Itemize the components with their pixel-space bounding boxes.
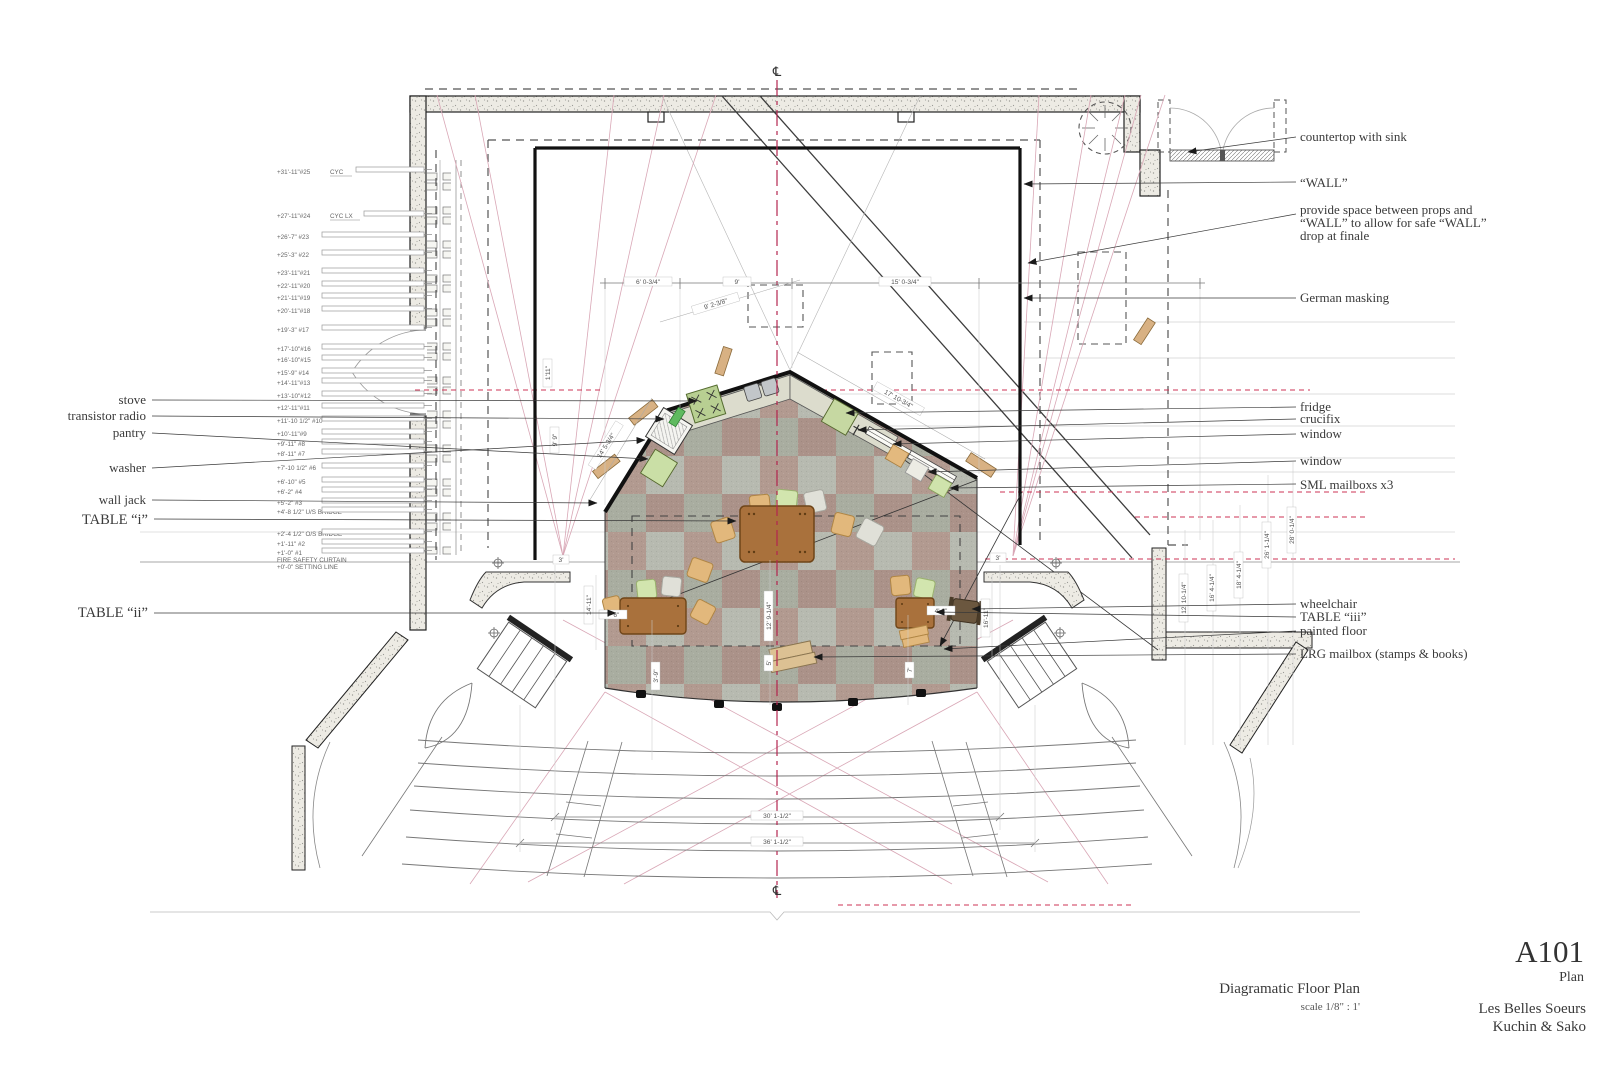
line-set-label: +13'-10"#12 <box>277 393 311 400</box>
line-set-batten <box>322 548 424 553</box>
line-set-batten <box>322 281 424 286</box>
dim-label: 3' <box>996 555 1001 562</box>
label-window-2: window <box>1300 453 1343 468</box>
label-german-masking: German masking <box>1300 290 1390 305</box>
line-set-label: +10'-11"#9 <box>277 431 307 438</box>
line-set-batten <box>322 325 424 330</box>
line-set-label: +9'-11" #8 <box>277 441 306 448</box>
line-set-label: +19'-3" #17 <box>277 327 309 334</box>
line-set-batten <box>322 268 424 273</box>
dim-label: 12' 10-1/4" <box>1181 582 1188 614</box>
dim-label: 7' <box>907 668 914 673</box>
designers: Kuchin & Sako <box>1493 1019 1586 1035</box>
sheet-number: A101 <box>1515 934 1584 969</box>
line-set-label: +1'-0" #1 <box>277 550 302 557</box>
dim-label: 28' 0-1/4" <box>1289 515 1296 543</box>
line-set-batten <box>322 355 424 360</box>
label-painted-floor: painted floor <box>1300 623 1367 638</box>
line-set-batten <box>322 539 424 544</box>
label-wall-jack: wall jack <box>99 492 147 507</box>
proscenium-right <box>984 572 1084 608</box>
dim-label: 30' 1-1/2" <box>763 813 791 820</box>
line-set-batten <box>322 250 424 255</box>
label-countertop: countertop with sink <box>1300 129 1407 144</box>
dim-label: 16' 4-1/4" <box>1209 573 1216 601</box>
line-set-batten <box>322 487 424 492</box>
loading-alcove <box>1158 100 1286 161</box>
dim-label: 9' <box>735 279 740 286</box>
dim-label: 4' 1" <box>935 608 948 615</box>
label-lrg-mailbox: LRG mailbox (stamps & books) <box>1300 646 1468 661</box>
floor-plan-drawing: ℄ ℄ <box>0 0 1600 1067</box>
line-set-label: +1'-11" #2 <box>277 541 306 548</box>
dim-label: 12' 9-1/4" <box>766 601 773 629</box>
dim-label: 3'-9" <box>653 669 660 683</box>
line-set-batten <box>322 306 424 311</box>
line-set-label: +17'-10"#16 <box>277 346 311 353</box>
line-set-label: +11'-10 1/2" #10 <box>277 418 323 425</box>
centerline-symbol-bottom: ℄ <box>772 883 782 898</box>
dim-label: 14'-11" <box>586 594 593 615</box>
line-set-label: +23'-11"#21 <box>277 270 311 277</box>
title-block: A101 Plan Les Belles Soeurs Kuchin & Sak… <box>1219 934 1586 1035</box>
chair <box>831 512 855 537</box>
line-set-label: +31'-11"#25 <box>277 169 311 176</box>
show-title: Les Belles Soeurs <box>1479 1001 1587 1017</box>
line-set-batten <box>322 507 424 512</box>
centerline-symbol-top: ℄ <box>772 64 782 79</box>
line-set-label: +21'-11"#19 <box>277 295 311 302</box>
chair <box>890 575 911 596</box>
line-set-batten <box>322 529 424 534</box>
line-set-label: +25'-3" #22 <box>277 252 309 259</box>
line-set-label: +22'-11"#20 <box>277 283 311 290</box>
label-window-1: window <box>1300 426 1343 441</box>
chair <box>636 579 657 600</box>
section-line <box>150 912 1360 920</box>
label-washer: washer <box>109 460 146 475</box>
dim-label: 6' 0-3/4" <box>636 279 661 286</box>
line-set-batten <box>322 391 424 396</box>
line-set-label: +6'-10" #5 <box>277 479 306 486</box>
line-set-label: +12'-11"#11 <box>277 405 310 412</box>
label-table-iii: TABLE “iii” <box>1300 609 1367 624</box>
dim-label: 1'11" <box>545 365 552 380</box>
label-crucifix: crucifix <box>1300 411 1341 426</box>
line-set-batten <box>322 463 424 468</box>
dim-label: 9' 9" <box>552 433 559 446</box>
line-set-batten <box>322 344 424 349</box>
label-table-ii: TABLE “ii” <box>78 605 148 621</box>
chair <box>913 577 936 600</box>
cyc-lx-label: CYC LX <box>330 213 354 220</box>
label-pantry: pantry <box>113 425 147 440</box>
line-set-label: +0'-0" SETTING LINE <box>277 564 338 571</box>
stairs-left <box>475 615 573 710</box>
drawing-scale: scale 1/8" : 1' <box>1301 1001 1360 1013</box>
line-set-label: +16'-10"#15 <box>277 357 311 364</box>
line-set-batten <box>322 368 424 373</box>
line-set-label: +26'-7" #23 <box>277 234 309 241</box>
dim-label: 16'-11" <box>983 607 990 628</box>
label-transistor-radio: transistor radio <box>68 408 146 423</box>
dim-label: 26' 1-1/4" <box>1264 530 1271 558</box>
line-set-label: +15'-9" #14 <box>277 370 309 377</box>
label-prop-note-3: drop at finale <box>1300 228 1370 243</box>
dim-label: 15' 0-3/4" <box>891 279 919 286</box>
line-set-batten <box>356 167 424 172</box>
line-set-batten <box>364 211 424 216</box>
drawing-title: Diagramatic Floor Plan <box>1219 981 1360 997</box>
line-set-label: +7'-10 1/2" #6 <box>277 465 316 472</box>
line-set-label: +14'-11"#13 <box>277 380 311 387</box>
dim-label: 3' <box>559 557 564 564</box>
line-set-label: +8'-11" #7 <box>277 451 306 458</box>
dim-label: 18' 4-1/4" <box>1236 560 1243 588</box>
line-set-schedule: +31'-11"#25+27'-11"#24+26'-7" #23+25'-3"… <box>277 167 432 571</box>
cyc-label: CYC <box>330 169 344 176</box>
line-set-batten <box>322 378 424 383</box>
line-set-label: +6'-2" #4 <box>277 489 302 496</box>
line-set-batten <box>322 498 424 503</box>
line-set-batten <box>322 477 424 482</box>
label-stove: stove <box>119 392 147 407</box>
line-set-batten <box>322 403 424 408</box>
line-set-label: FIRE SAFETY CURTAIN <box>277 557 347 564</box>
label-table-i: TABLE “i” <box>82 512 148 528</box>
label-wall: “WALL” <box>1300 175 1348 190</box>
line-set-label: +27'-11"#24 <box>277 213 311 220</box>
line-set-batten <box>322 293 424 298</box>
line-set-batten <box>322 429 424 434</box>
sheet-name: Plan <box>1559 970 1584 985</box>
dim-label: 5' <box>766 661 773 666</box>
chair <box>661 576 682 597</box>
line-set-batten <box>322 232 424 237</box>
line-set-batten <box>322 439 424 444</box>
label-sml-mailboxes: SML mailboxs x3 <box>1300 477 1393 492</box>
dim-label: 36' 1-1/2" <box>763 839 791 846</box>
line-set-label: +20'-11"#18 <box>277 308 311 315</box>
table-ii <box>620 598 686 634</box>
